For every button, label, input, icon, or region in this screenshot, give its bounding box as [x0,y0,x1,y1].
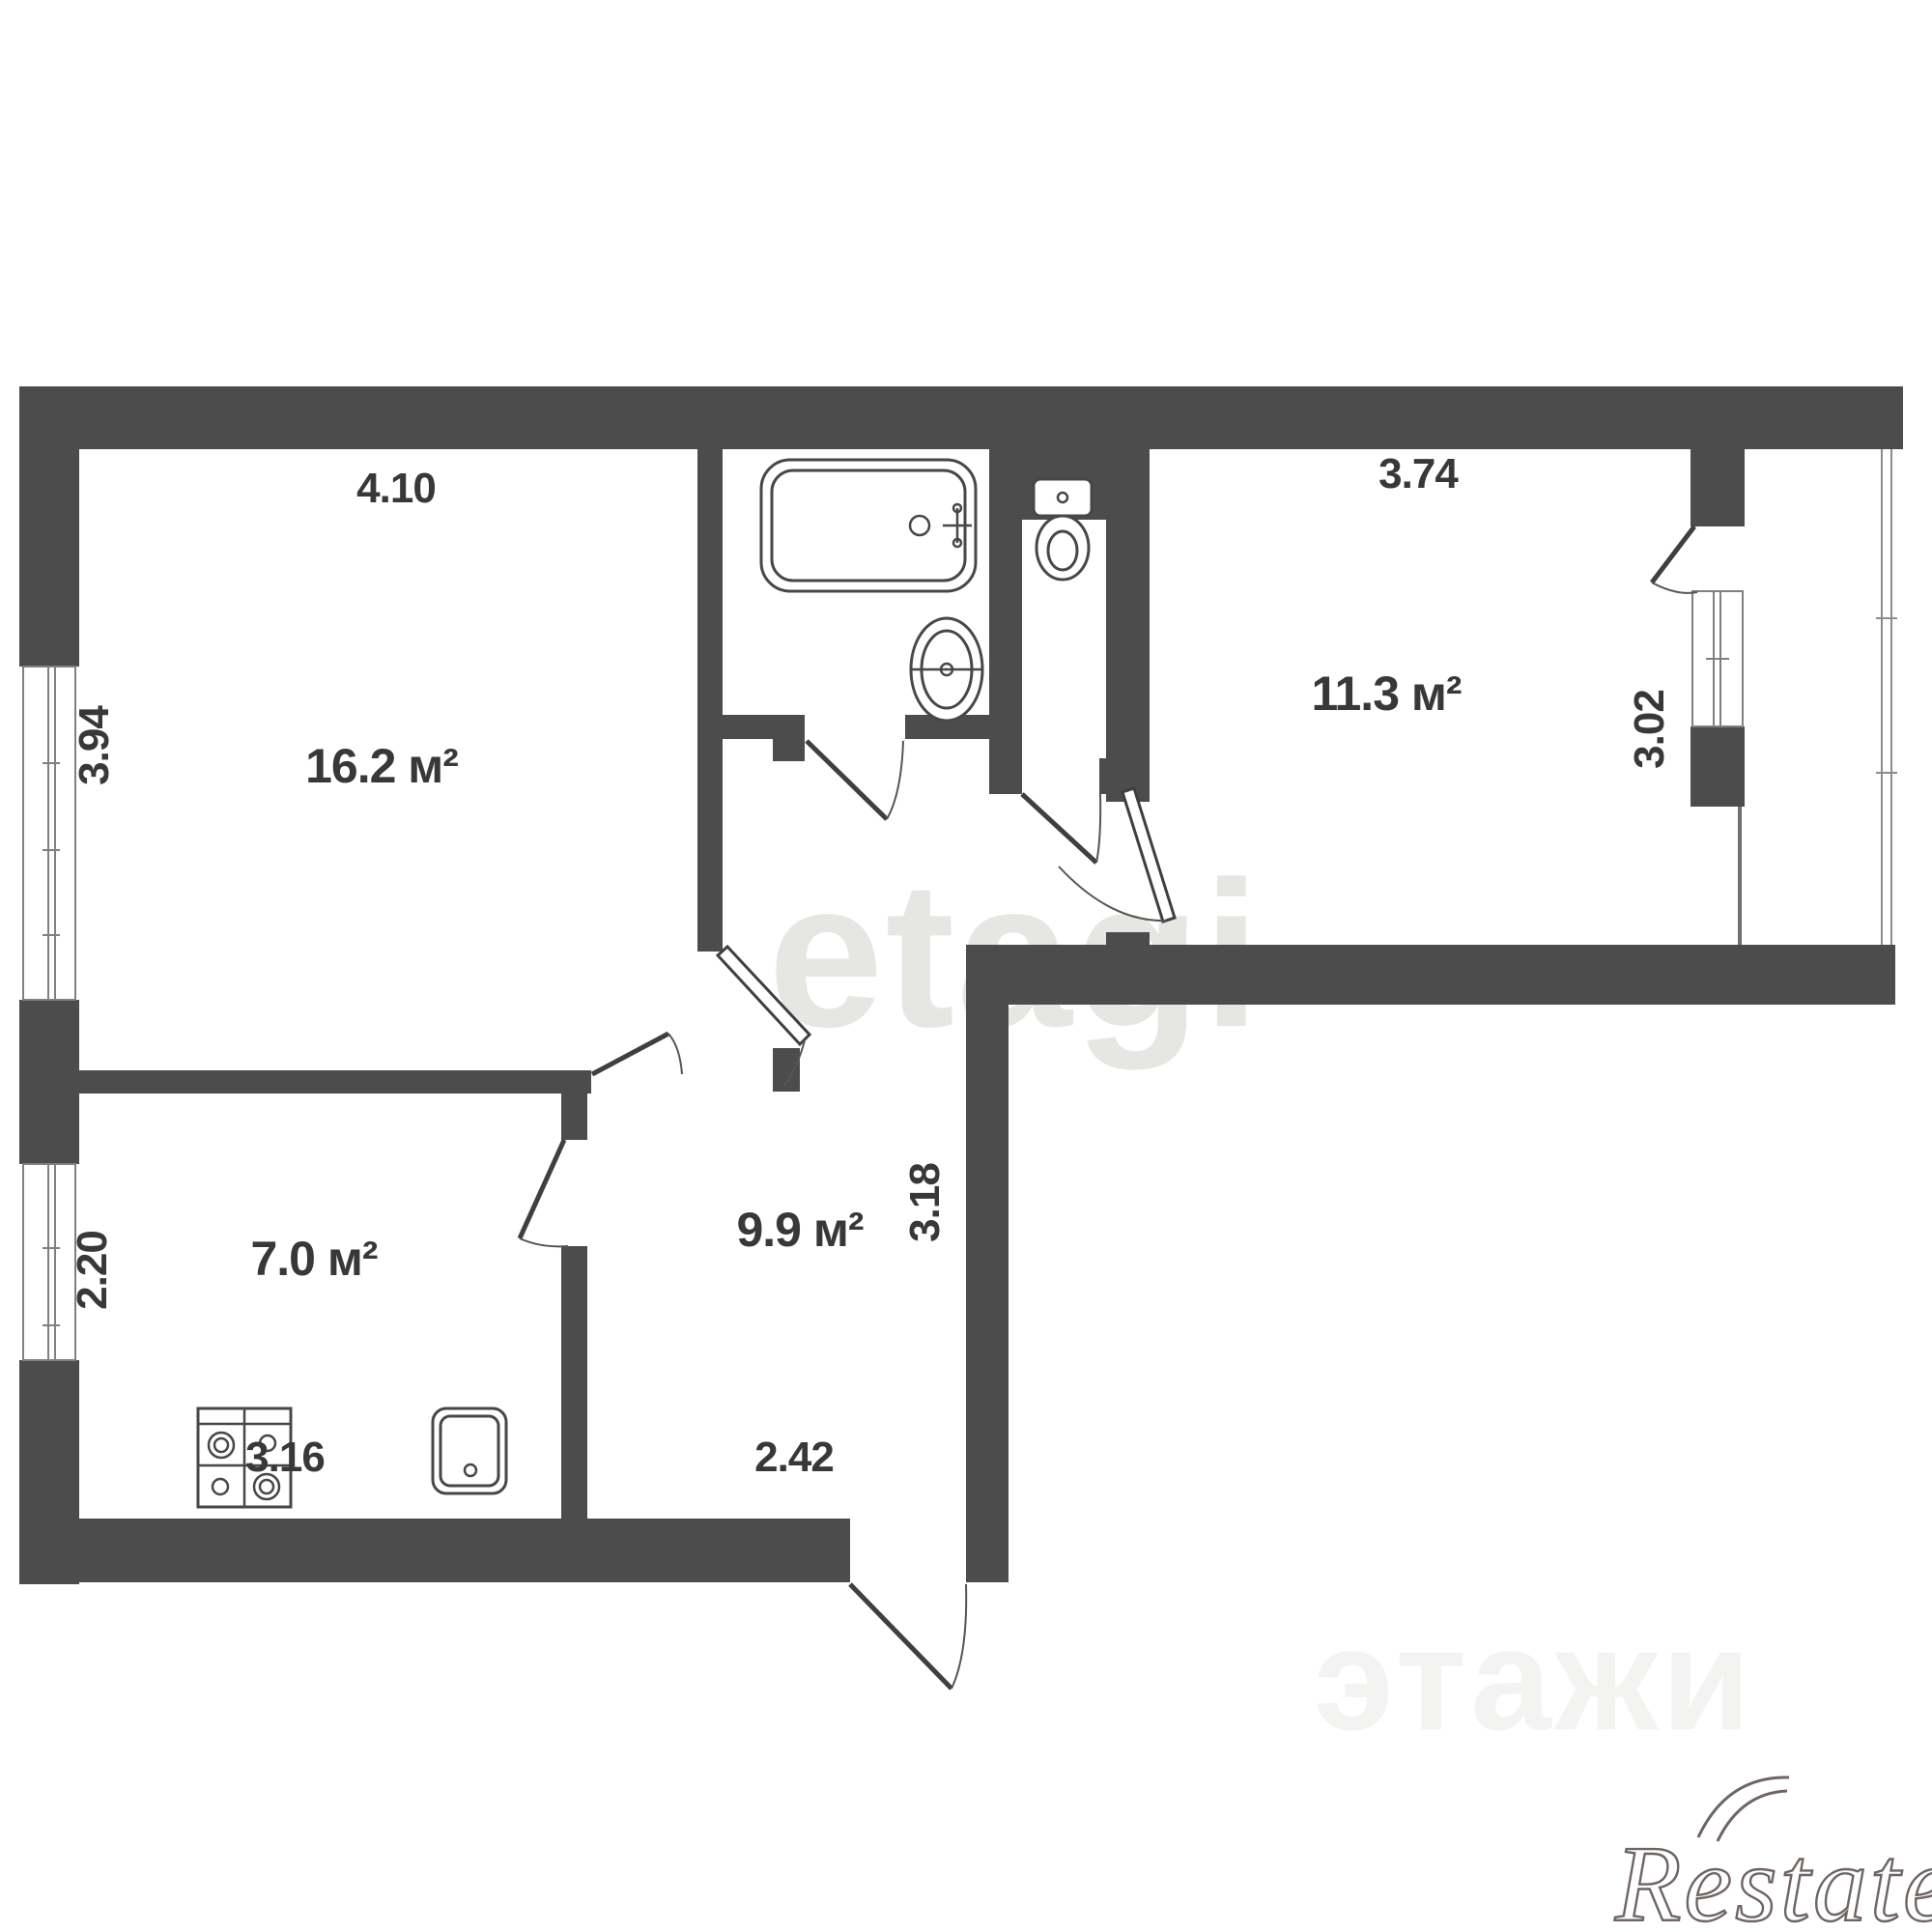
wall-bedroom-left-upper [1106,446,1150,802]
entrance-door-icon [850,1584,966,1689]
living-room-window-icon [23,667,75,1000]
wall-left-upper [19,386,79,667]
floor-plan-drawing: etagi этажи [0,0,1932,1932]
wall-bottom-left [19,1519,850,1582]
dim-bedroom-top: 3.74 [1378,450,1459,497]
brand-logo: Restate [1614,1777,1932,1932]
label-bedroom-area: 11.3 м² [1311,667,1461,721]
floor-plan-page: etagi этажи [0,0,1932,1932]
wall-balcony-stub-bottom [1690,726,1745,807]
wall-bottom-entry-jamb [966,1519,1009,1582]
balcony-door-icon [1652,526,1697,593]
bathtub-icon [761,460,976,591]
wall-wc-bottom-left [989,758,1022,794]
bedroom-window-icon [1692,591,1743,726]
wall-living-right [697,446,723,952]
dim-bedroom-right: 3.02 [1626,690,1673,769]
wall-bath-bottom-stub [773,715,805,761]
watermark-etazhi-faint: этажи [1314,1598,1754,1760]
wall-stub-living-door [773,1048,800,1092]
wall-kitchen-right-upper [561,1092,587,1140]
wall-kitchen-right-lower [561,1246,587,1524]
bathroom-sink-icon [910,618,983,721]
dim-hall-bottom: 2.42 [754,1434,834,1481]
wall-bedroom-bottom [966,945,1895,1005]
brand-logo-text: Restate [1614,1825,1932,1932]
label-hall-area: 9.9 м² [736,1203,863,1257]
kitchen-window-icon [23,1164,75,1360]
toilet-icon [1034,479,1092,580]
dim-living-top: 4.10 [356,465,436,512]
wall-living-kitchen [19,1070,591,1094]
label-living-area: 16.2 м² [305,739,458,793]
dim-kitchen-bottom: 3.16 [245,1434,325,1481]
kitchen-door-icon [520,1140,568,1246]
balcony-railing-icon [1876,449,1897,945]
wall-top [19,386,1903,449]
wall-balcony-stub-top [1690,446,1745,526]
kitchen-sink-icon [433,1408,506,1493]
wall-hall-right [966,1005,1009,1519]
dim-kitchen-left: 2.20 [69,1231,116,1310]
bathroom-door-icon [807,741,903,819]
label-kitchen-area: 7.0 м² [250,1232,377,1286]
dim-hall-right: 3.18 [901,1163,949,1242]
dim-living-left: 3.94 [71,705,118,785]
